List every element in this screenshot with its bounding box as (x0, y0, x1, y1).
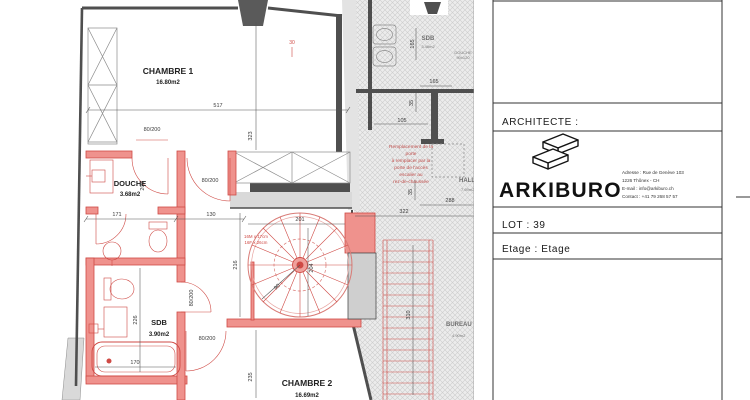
dim-label: 105 (397, 118, 406, 124)
address-line: Adresse : Rue de Genève 103 (622, 170, 684, 175)
door-label: 80/200 (199, 336, 216, 342)
dim-label: 35 (408, 189, 414, 195)
dim-label: 310 (406, 310, 412, 319)
shower-note: 90x120 (456, 55, 470, 60)
wc-toilet (149, 222, 167, 252)
arkiburo-logo-icon (533, 134, 578, 169)
room-area-chambre1: 16.80m2 (156, 80, 180, 86)
replacement-note: porte (406, 151, 417, 157)
room-label-sdb-haut: SDB (422, 36, 435, 42)
door-label: 80/200 (189, 290, 195, 307)
etage-label: Etage : Etage (502, 244, 570, 255)
replacement-note: à remplacer par la (392, 158, 431, 164)
dim-label: 130 (206, 212, 215, 218)
room-label-sdb: SDB (151, 318, 167, 327)
dim-label: 226 (133, 315, 139, 324)
door-label: 80/200 (202, 178, 219, 184)
spiral-note: 16M x 17cm (244, 234, 268, 239)
replacement-note: porte de l'accès (394, 165, 428, 171)
room-area-chambre2: 16.69m2 (295, 393, 319, 399)
sdb-sink (89, 307, 127, 337)
room-label-bureau: BUREAU (446, 322, 472, 328)
floorplan-sheet: CHAMBRE 1 16.80m2 DOUCHE 3.68m2 SDB 3.90… (0, 0, 750, 400)
plan-area: CHAMBRE 1 16.80m2 DOUCHE 3.68m2 SDB 3.90… (62, 0, 475, 400)
dim-label: 204 (309, 263, 315, 272)
dim-label: 200 (140, 181, 146, 190)
replacement-note: Remplacement de la (389, 144, 433, 150)
dim-label: 165 (429, 79, 438, 85)
replacement-note: escalier au (399, 172, 423, 178)
address-line: 1226 Thônex - CH (622, 178, 659, 183)
dim-label: 171 (112, 212, 121, 218)
dim-label: 235 (248, 372, 254, 381)
dim-label: 323 (248, 131, 254, 140)
room-area-bureau: 4.90m2 (452, 333, 466, 338)
dim-label: 35 (409, 100, 415, 106)
exterior-gray-wedge (62, 338, 84, 400)
lot-label: LOT : 39 (502, 220, 546, 231)
room-area-douche: 3.68m2 (120, 192, 141, 198)
shower-tray (86, 160, 113, 193)
room-area-sdb-haut: 3.46m2 (421, 44, 435, 49)
dim-label: 288 (445, 198, 454, 204)
wardrobe-chambre1 (88, 28, 117, 144)
room-area-sdb: 3.90m2 (149, 332, 170, 338)
sdb-toilet (104, 278, 134, 300)
wardrobe-hall (234, 152, 350, 183)
brand-wordmark: ARKIBURO (499, 179, 622, 202)
address-line: E-mail : info@arkiburo.ch (622, 186, 674, 191)
dim-label: 165 (410, 39, 416, 48)
room-label-chambre1: CHAMBRE 1 (143, 66, 194, 76)
title-block: ARCHITECTE : ARKIBURO Adresse : Rue de G… (493, 0, 722, 400)
spiral-note: 16F x 26cm (245, 240, 268, 245)
room-label-hall: HALL (459, 178, 475, 184)
dim-label: 201 (295, 217, 304, 223)
address-line: Contact : +41 79 268 57 57 (622, 194, 678, 199)
dim-label: 322 (399, 209, 408, 215)
room-label-chambre2: CHAMBRE 2 (282, 378, 333, 388)
floorplan-canvas: CHAMBRE 1 16.80m2 DOUCHE 3.68m2 SDB 3.90… (0, 0, 750, 400)
door-label: 80/200 (144, 127, 161, 133)
dim-label: 30 (289, 40, 295, 46)
replacement-note: rez-de-chaussée (393, 179, 429, 185)
architect-label: ARCHITECTE : (502, 117, 579, 128)
bathtub (92, 342, 180, 376)
dim-label: 216 (233, 260, 239, 269)
room-area-hall: 7.69m2 (461, 187, 475, 192)
dim-label: 170 (130, 360, 139, 366)
dim-label: 517 (213, 103, 222, 109)
